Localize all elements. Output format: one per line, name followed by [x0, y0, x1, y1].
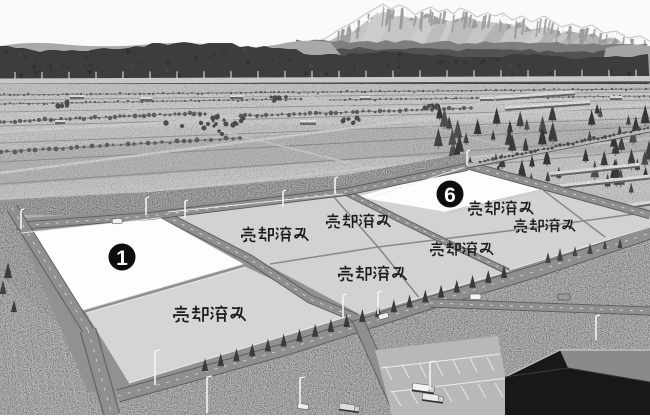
svg-text:1: 1	[116, 247, 128, 270]
svg-text:6: 6	[444, 184, 456, 207]
